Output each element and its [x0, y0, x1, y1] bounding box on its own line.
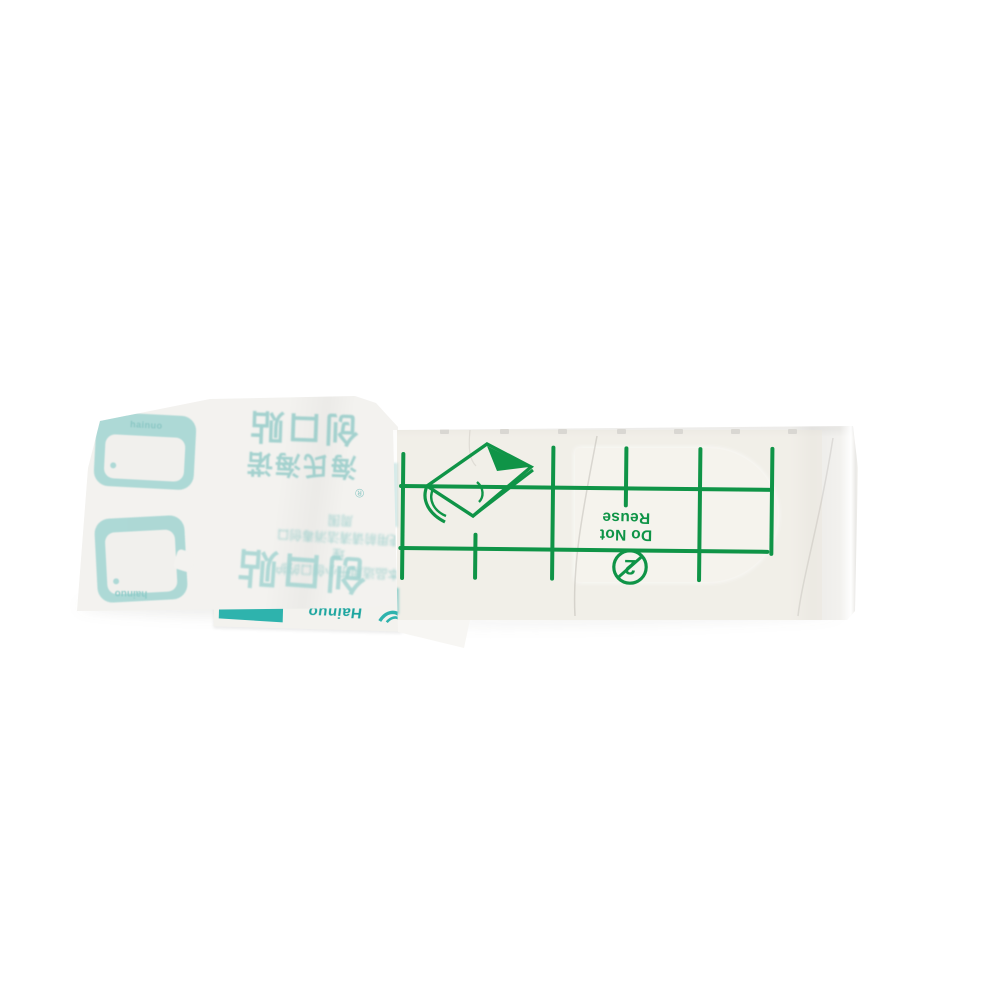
grid-line-vertical — [697, 447, 702, 582]
edge-notch — [617, 429, 626, 434]
registered-mark: ® — [348, 486, 364, 500]
product-photo: Hainuo hainuo hainuo 创口贴 海氏海诺 ® 本品适用于小创口… — [0, 0, 1002, 1002]
fine-print-line2: 使用前请清洁消毒创口周围 — [276, 508, 404, 549]
edge-notch — [500, 429, 509, 434]
bird-logo-label: hainuo — [103, 588, 159, 600]
edge-notch — [731, 429, 740, 434]
brand-name-print: 海氏海诺 — [236, 446, 365, 487]
grid-line-vertical — [400, 452, 405, 580]
bird-logo-label: hainuo — [96, 417, 196, 432]
warning-line2: Reuse — [584, 508, 668, 526]
edge-notch — [788, 429, 797, 434]
warning-line1: Do Not — [584, 525, 668, 543]
edge-notch — [674, 429, 683, 434]
grid-line-vertical — [550, 446, 555, 581]
edge-notch — [558, 429, 567, 434]
grid-line-vertical — [769, 447, 774, 556]
bird-logo-inner — [104, 434, 186, 482]
product-name-print-repeat: 创口贴 — [226, 540, 368, 607]
edge-notch — [440, 429, 449, 434]
peel-off-icon — [421, 439, 535, 529]
no-reuse-icon: 2 — [610, 547, 651, 588]
grid-line-vertical — [473, 533, 477, 580]
grid-line-horizontal — [398, 546, 769, 554]
bird-logo-inner — [105, 529, 178, 595]
do-not-reuse-text: Do Not Reuse — [584, 508, 669, 543]
grid-line-vertical — [624, 446, 629, 507]
bird-logo-icon: hainuo — [93, 411, 197, 490]
